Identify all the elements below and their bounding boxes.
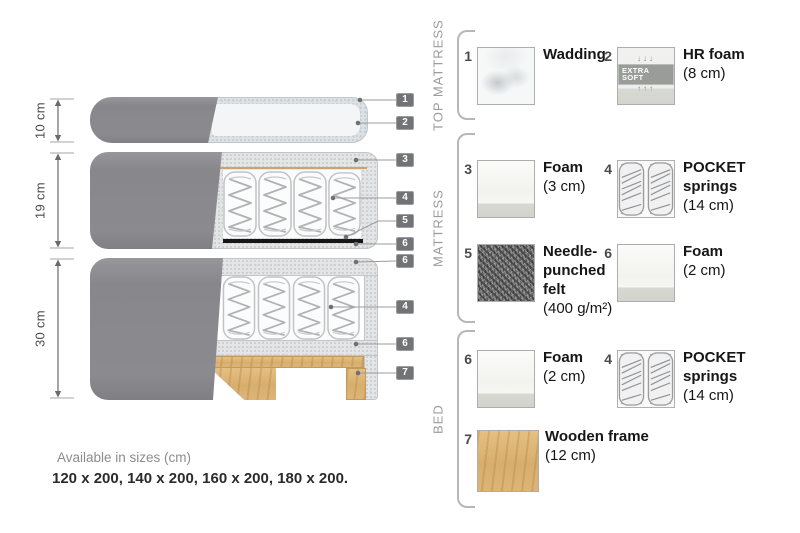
section-label-top-mattress: TOP MATTRESS	[428, 30, 448, 120]
mattress-fabric-cover	[90, 152, 222, 249]
legend-number-4: 4	[592, 161, 612, 177]
section-label-bed: BED	[428, 330, 448, 508]
legend-detail: (14 cm)	[683, 197, 755, 216]
pocket-spring-graphic	[328, 170, 361, 238]
foam-swatch	[477, 350, 535, 408]
dimension-label-top-mattress: 10 cm	[31, 99, 49, 142]
top-mattress-section	[90, 97, 372, 143]
pocket-spring-graphic	[222, 276, 256, 340]
wadding-swatch	[477, 47, 535, 105]
top-mattress-fabric-cover	[90, 97, 218, 143]
mattress-felt-layer	[223, 239, 363, 243]
section-label-mattress: MATTRESS	[428, 133, 448, 323]
legend-label-foam-6: Foam (2 cm)	[683, 243, 751, 281]
mattress-tan-layer	[215, 167, 367, 169]
legend-detail: (400 g/m²)	[543, 300, 625, 319]
bed-section	[90, 258, 378, 400]
legend-number-6b: 6	[452, 351, 472, 367]
mattress-springs-row	[223, 170, 361, 238]
available-sizes-values: 120 x 200, 140 x 200, 160 x 200, 180 x 2…	[52, 470, 348, 487]
wooden-leg-diagonal	[210, 368, 276, 400]
mattress-construction-diagram: { "colors": { "fabric_gray": "#8b8b8f", …	[0, 0, 800, 533]
pocket-spring-graphic	[293, 170, 327, 238]
legend-detail: (3 cm)	[543, 178, 611, 197]
legend-name: POCKET springs	[683, 159, 755, 197]
layer-tag-3: 3	[396, 153, 414, 167]
layer-tag-6c: 6	[396, 337, 414, 351]
layer-tag-5: 5	[396, 214, 414, 228]
legend-name: Needle-punched felt	[543, 243, 625, 300]
layer-tag-6: 6	[396, 237, 414, 251]
wooden-beam	[200, 356, 364, 368]
bed-side-wall	[364, 258, 378, 400]
legend-number-2: 2	[592, 48, 612, 64]
pocket-spring-graphic	[258, 170, 292, 238]
mattress-cross-section	[208, 152, 378, 249]
legend-label-bed-pocket-springs: POCKET springs (14 cm)	[683, 349, 755, 406]
legend-label-pocket-springs: POCKET springs (14 cm)	[683, 159, 755, 216]
legend-number-5: 5	[452, 245, 472, 261]
bed-fabric-cover	[90, 258, 223, 400]
legend-detail: (2 cm)	[543, 368, 611, 387]
pocket-spring-graphic	[327, 276, 360, 340]
top-mattress-cross-section	[206, 97, 368, 143]
pocket-springs-swatch	[617, 160, 675, 218]
legend-number-6: 6	[592, 245, 612, 261]
legend-detail: (2 cm)	[683, 262, 751, 281]
wooden-leg	[346, 368, 366, 400]
dimension-label-mattress: 19 cm	[31, 153, 49, 248]
hr-foam-swatch: ↓↓↓ EXTRA SOFT ↑↑↑	[617, 47, 675, 105]
pocket-spring-graphic	[223, 170, 257, 238]
layer-tag-2: 2	[396, 116, 414, 130]
layer-tag-4: 4	[396, 191, 414, 205]
legend-number-7: 7	[452, 431, 472, 447]
top-mattress-bracket	[457, 30, 475, 120]
foam-swatch	[477, 160, 535, 218]
legend-name: Wooden frame	[545, 428, 675, 447]
pocket-springs-swatch	[617, 350, 675, 408]
arrows-up-icon: ↑↑↑	[637, 85, 655, 94]
mattress-section	[90, 152, 378, 249]
layer-tag-7: 7	[396, 366, 414, 380]
layer-tag-4b: 4	[396, 300, 414, 314]
layer-tag-6b: 6	[396, 254, 414, 268]
pocket-spring-graphic	[292, 276, 326, 340]
extra-soft-badge: EXTRA SOFT	[618, 64, 674, 85]
hr-foam-core	[212, 104, 360, 136]
dimension-label-bed: 30 cm	[31, 259, 49, 398]
bed-bottom-foam-layer	[208, 340, 378, 356]
arrows-down-icon: ↓↓↓	[637, 55, 655, 64]
legend-name: POCKET springs	[683, 349, 755, 387]
legend-name: HR foam	[683, 46, 763, 65]
legend-number-3: 3	[452, 161, 472, 177]
legend-detail: (14 cm)	[683, 387, 755, 406]
foam-swatch	[617, 244, 675, 302]
bed-springs-row	[222, 276, 360, 340]
wooden-frame-swatch	[477, 430, 539, 492]
legend-detail: (8 cm)	[683, 65, 763, 84]
needle-punched-felt-swatch	[477, 244, 535, 302]
legend-label-felt: Needle-punched felt (400 g/m²)	[543, 243, 625, 319]
legend-detail: (12 cm)	[545, 447, 675, 466]
legend-number-4b: 4	[592, 351, 612, 367]
available-sizes-label: Available in sizes (cm)	[57, 450, 191, 465]
legend-label-wooden-frame: Wooden frame (12 cm)	[545, 428, 675, 466]
layer-tag-1: 1	[396, 93, 414, 107]
legend-number-1: 1	[452, 48, 472, 64]
bed-top-foam-layer	[208, 258, 378, 276]
legend-name: Foam	[683, 243, 751, 262]
legend-label-hr-foam: HR foam (8 cm)	[683, 46, 763, 84]
pocket-spring-graphic	[257, 276, 291, 340]
